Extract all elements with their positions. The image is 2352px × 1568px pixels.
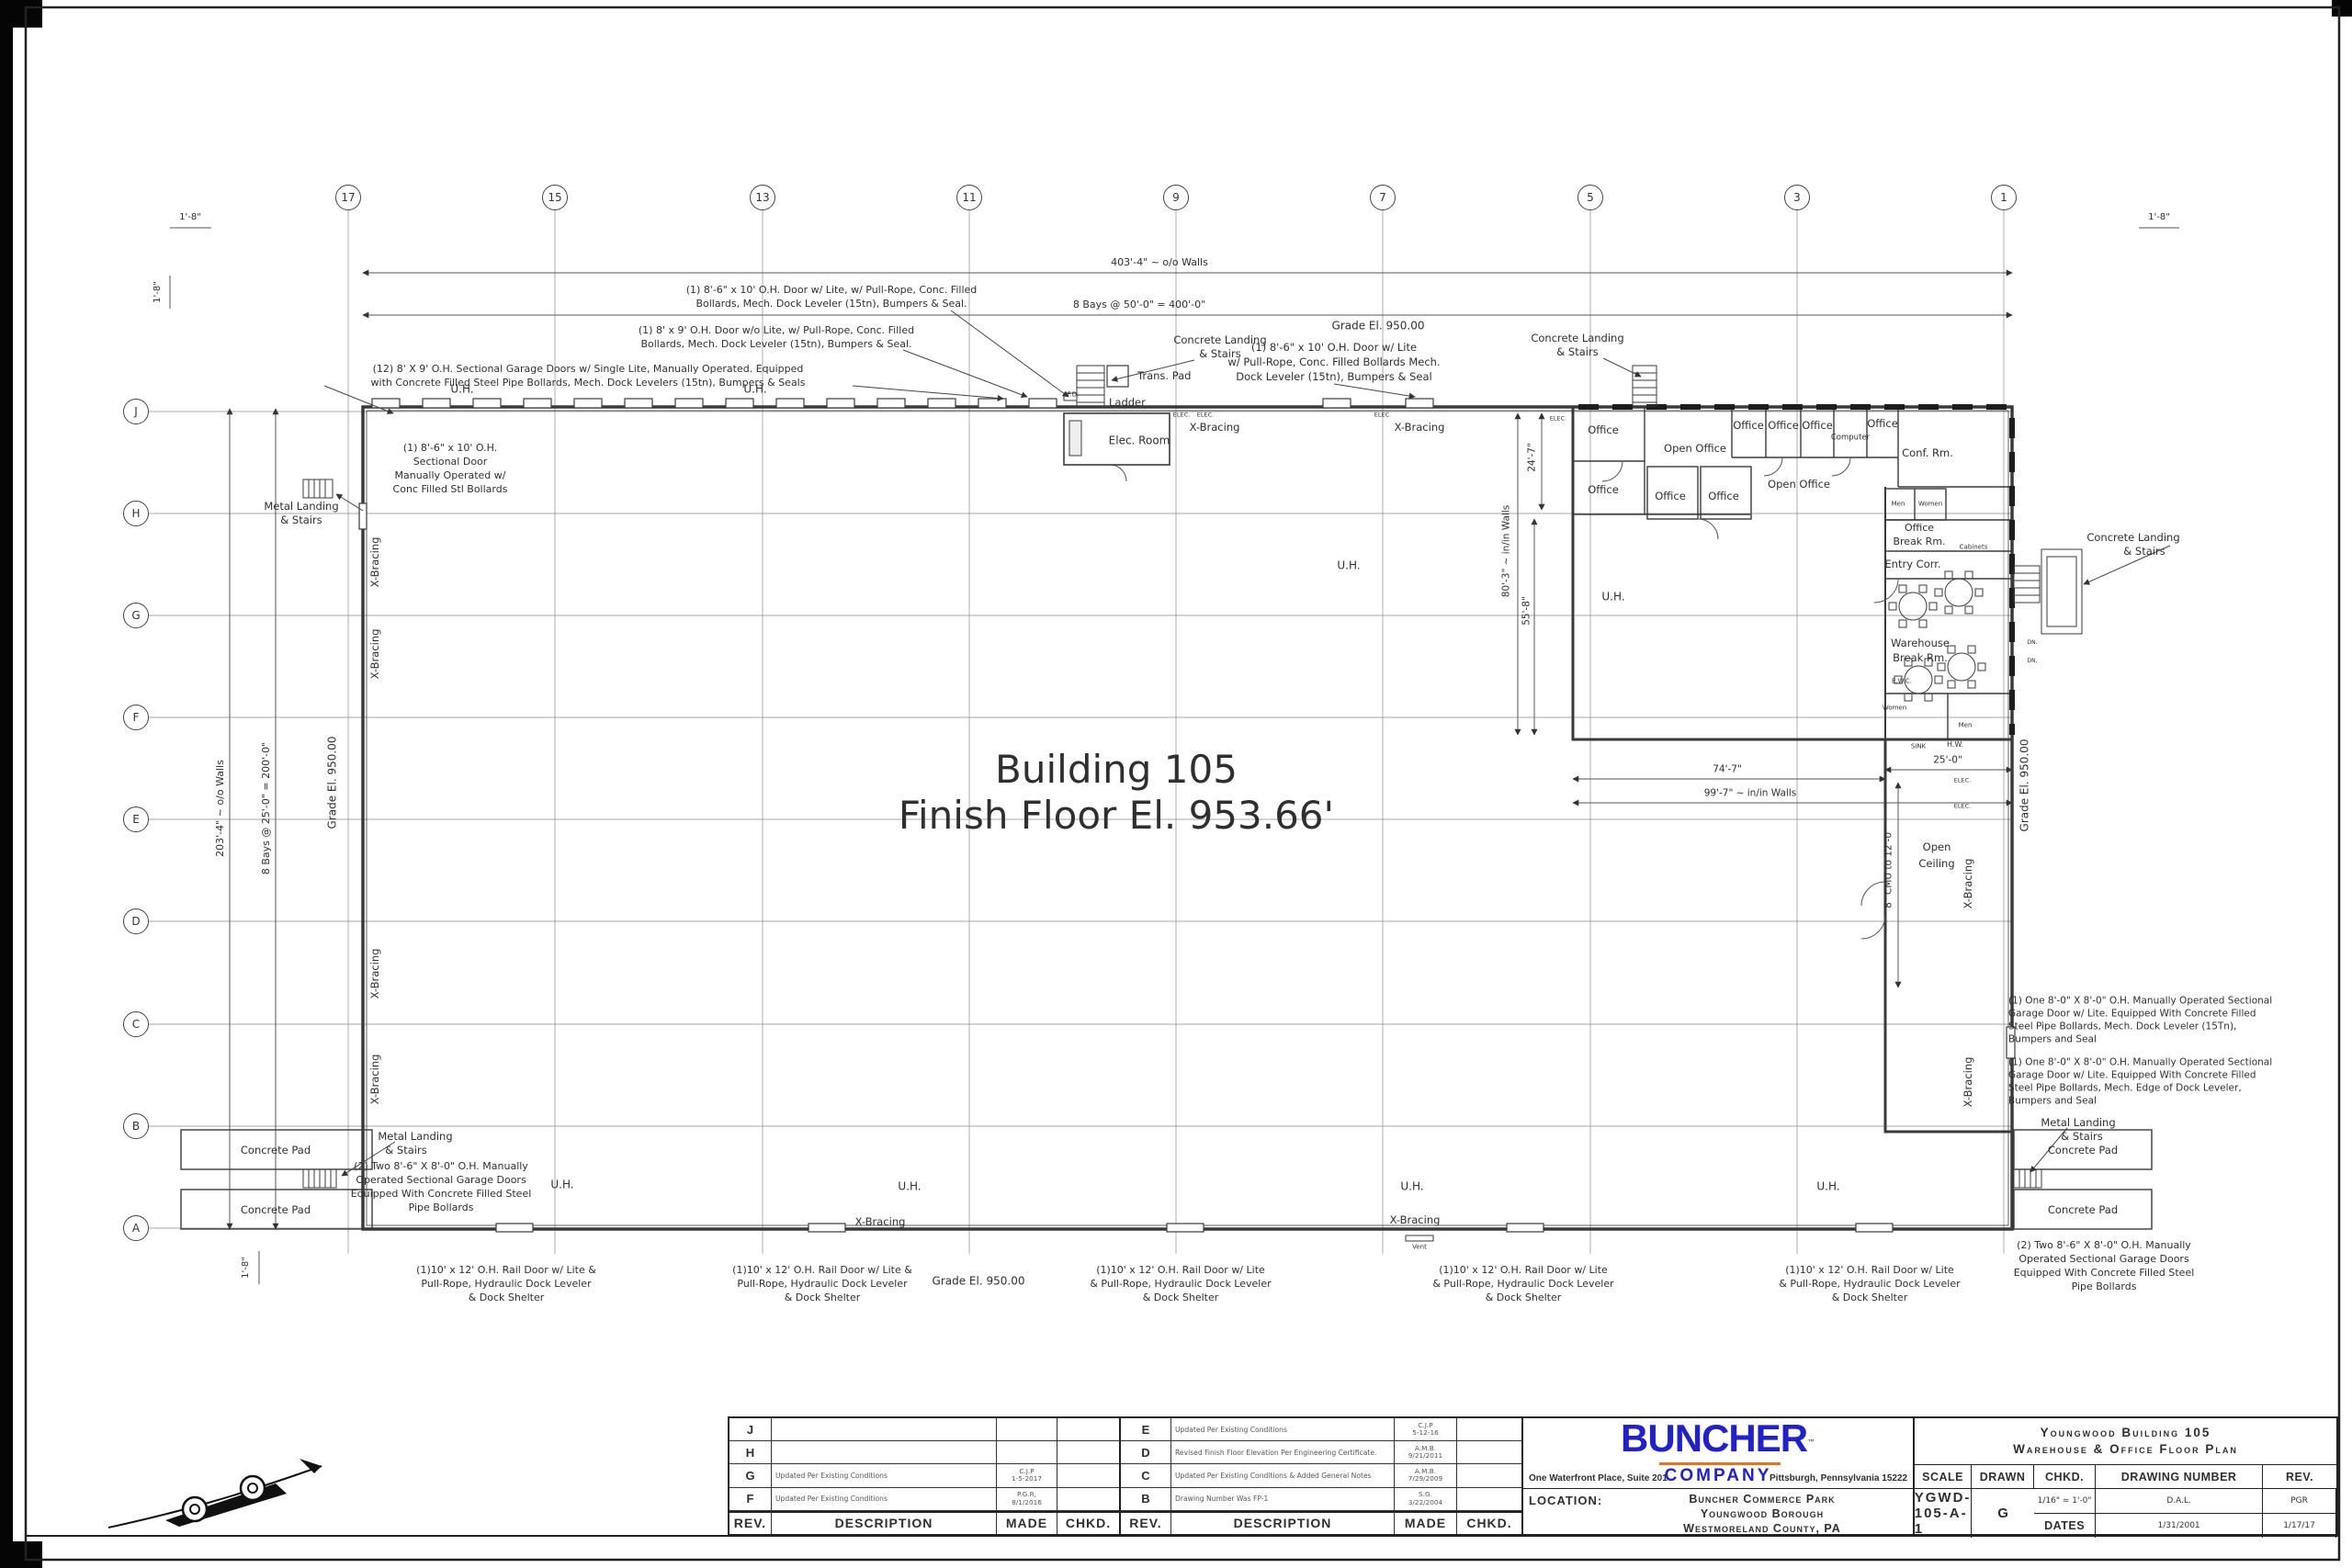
drawn-value: D.A.L. (2096, 1488, 2263, 1513)
ann-rail-door-5-line1: (1)10' x 12' O.H. Rail Door w/ Lite (1785, 1265, 1954, 1276)
ann-two-doors-left-line1: (2) Two 8'-6" X 8'-0" O.H. Manually (354, 1161, 528, 1172)
x-bracing-right-1: X-Bracing (1962, 859, 1973, 909)
concrete-landing-top-right-line2: & Stairs (1556, 346, 1598, 357)
grid-column-bubble-11: 11 (956, 185, 982, 210)
ann-rail-door-5-line3: & Dock Shelter (1832, 1292, 1908, 1303)
concrete-landing-top-right-line1: Concrete Landing (1531, 333, 1623, 344)
ann-left-door-line1: (1) 8'-6" x 10' O.H. (403, 443, 497, 454)
rev-letter-D: D (1121, 1441, 1171, 1464)
vent-label: Vent (1412, 1244, 1427, 1250)
rev-description-G: Updated Per Existing Conditions (772, 1464, 997, 1487)
rev-made-H (997, 1441, 1057, 1464)
ann-right-garage-1-line4: Bumpers and Seal (2008, 1034, 2097, 1044)
titleblock: Youngwood Building 105 Warehouse & Offic… (1915, 1418, 2336, 1534)
entry-landing-outer (2041, 549, 2082, 634)
grade-el-left: Grade El. 950.00 (327, 737, 339, 829)
room-entry-corr: Entry Corr. (1884, 558, 1940, 570)
sink-label: SINK (1911, 743, 1926, 750)
company-logo: BUNCHER (1621, 1416, 1807, 1460)
leader-lines (324, 310, 2170, 1176)
rev-letter-E: E (1121, 1418, 1171, 1441)
chkd-value: PGR (2263, 1488, 2336, 1513)
entry-landing-inner (2047, 557, 2076, 626)
building-title-line1: Building 105 (995, 750, 1238, 790)
grid-row-bubble-H: H (123, 501, 149, 526)
rev-made-E: C.J.P 5-12-16 (1395, 1418, 1457, 1441)
grade-el-bottom: Grade El. 950.00 (933, 1276, 1025, 1288)
ann-oh-door-mid-line3: Dock Leveler (15tn), Bumpers & Seal (1236, 371, 1431, 382)
stairs-top-right (1633, 366, 1657, 406)
grid-row-bubble-B: B (123, 1113, 149, 1139)
elec-label-6: ELEC. (1954, 804, 1971, 810)
dim-1-8-top-left: 1'-8" (179, 213, 201, 223)
uh-label-4: U.H. (1601, 592, 1624, 604)
ann-left-door-line4: Conc Filled Stl Bollards (393, 484, 508, 495)
company-divider (1523, 1488, 1913, 1489)
rev-header-description: DESCRIPTION (772, 1511, 997, 1534)
grid-row-bubble-A: A (123, 1215, 149, 1241)
ann-rail-door-1-line2: Pull-Rope, Hydraulic Dock Leveler (421, 1279, 591, 1290)
room-women-1: Women (1918, 501, 1942, 507)
ann-rail-door-2-line3: & Dock Shelter (785, 1292, 861, 1303)
drawing-title-line2: Warehouse & Office Floor Plan (1915, 1442, 2336, 1456)
stairs-right-lower (2014, 1169, 2041, 1188)
ewc-label: E.W.C. (1892, 678, 1912, 684)
room-office-7: Office (1802, 420, 1833, 431)
left-wall-sectional-door (359, 503, 367, 529)
ann-rail-door-5-line2: & Pull-Rope, Hydraulic Dock Leveler (1779, 1279, 1960, 1290)
elec-label-1: ELEC. (1173, 412, 1190, 419)
ann-right-garage-1-line2: Garage Door w/ Lite. Equipped With Concr… (2008, 1009, 2256, 1019)
grid-row-bubble-D: D (123, 908, 149, 934)
rev-header: REV. (2263, 1464, 2336, 1488)
scale-header: SCALE (1915, 1464, 1972, 1488)
dim-25-0: 25'-0" (1933, 755, 1962, 765)
room-computer: Computer (1831, 434, 1870, 443)
company-block: BUNCHER™ COMPANY One Waterfront Place, S… (1523, 1418, 1915, 1534)
company-logo-underline (1659, 1462, 1781, 1465)
drawing-number-header: DRAWING NUMBER (2096, 1464, 2263, 1488)
ann-sectional-doors-line1: (12) 8' X 9' O.H. Sectional Garage Doors… (373, 364, 804, 375)
cabinets-label: Cabinets (1960, 544, 1988, 550)
rev-description-J (772, 1418, 997, 1441)
location-line-2: Youngwood Borough (1624, 1507, 1900, 1520)
metal-landing-bl-line2: & Stairs (385, 1145, 426, 1156)
elec-room-label: Elec. Room (1109, 435, 1170, 447)
room-open-office-2: Open Office (1768, 479, 1830, 490)
rev-header-rev: REV. (1121, 1511, 1171, 1534)
concrete-pad-left-1-label: Concrete Pad (241, 1145, 311, 1156)
title-strip: JHGUpdated Per Existing ConditionsC.J.P … (728, 1416, 2338, 1536)
room-office-break-line2: Break Rm. (1893, 536, 1945, 547)
rev-header-made: MADE (1395, 1511, 1457, 1534)
concrete-landing-right-line2: & Stairs (2123, 546, 2165, 557)
grid-row-bubble-G: G (123, 603, 149, 628)
rev-description-B: Drawing Number Was FP-1 (1171, 1488, 1395, 1511)
rev-chkd-D (1457, 1441, 1521, 1464)
ann-oh-door-8x9-line2: Bollards, Mech. Dock Leveler (15tn), Bum… (640, 339, 911, 350)
rev-value: G (1972, 1488, 2034, 1538)
dim-1-8-top-right: 1'-8" (2148, 213, 2170, 223)
ann-oh-door-86x10-line1: (1) 8'-6" x 10' O.H. Door w/ Lite, w/ Pu… (686, 285, 978, 296)
grid-column-bubble-17: 17 (335, 185, 361, 210)
rev-chkd-J (1057, 1418, 1119, 1441)
room-office-6: Office (1768, 420, 1799, 431)
ann-two-doors-right-line3: Equipped With Concrete Filled Steel (2014, 1268, 2195, 1279)
room-office-1: Office (1588, 424, 1619, 435)
chkd-header: CHKD. (2034, 1464, 2096, 1488)
rev-letter-B: B (1121, 1488, 1171, 1511)
ladder-label: Ladder (1109, 397, 1146, 408)
metal-landing-left-line2: & Stairs (280, 514, 322, 525)
x-bracing-left-1: X-Bracing (369, 537, 380, 588)
grid-column-bubble-15: 15 (542, 185, 568, 210)
revision-table-left: JHGUpdated Per Existing ConditionsC.J.P … (729, 1418, 1121, 1534)
ann-two-doors-left-line2: Operated Sectional Garage Doors (356, 1175, 526, 1186)
vent-mark (1406, 1235, 1433, 1241)
hw-label: H.W. (1947, 741, 1963, 749)
room-office-4: Office (1708, 491, 1739, 502)
ann-oh-door-mid-line1: (1) 8'-6" x 10' O.H. Door w/ Lite (1251, 342, 1417, 353)
dim-403-4: 403'-4" ~ o/o Walls (1111, 257, 1208, 268)
ann-rail-door-2-line1: (1)10' x 12' O.H. Rail Door w/ Lite & (732, 1265, 912, 1276)
rev-made-G: C.J.P 1-5-2017 (997, 1464, 1057, 1487)
rev-chkd-B (1457, 1488, 1521, 1511)
metal-landing-left-line1: Metal Landing (264, 501, 338, 512)
ann-right-garage-2-line2: Garage Door w/ Lite. Equipped With Concr… (2008, 1070, 2256, 1080)
room-men-1: Men (1892, 501, 1905, 507)
room-conf-rm: Conf. Rm. (1902, 447, 1953, 458)
ann-two-doors-left-line4: Pipe Bollards (409, 1202, 474, 1213)
grid-column-bubble-5: 5 (1577, 185, 1603, 210)
rev-header-made: MADE (997, 1511, 1057, 1534)
room-office-break-line1: Office (1905, 523, 1934, 534)
ann-rail-door-3-line2: & Pull-Rope, Hydraulic Dock Leveler (1090, 1279, 1271, 1290)
ann-sectional-doors-line2: with Concrete Filled Steel Pipe Bollards… (371, 378, 806, 389)
x-bracing-left-3: X-Bracing (369, 949, 380, 999)
x-bracing-top-1: X-Bracing (1190, 422, 1240, 433)
dim-74-7: 74'-7" (1713, 764, 1742, 774)
scan-corner-top-left (13, 0, 42, 28)
ann-rail-door-1-line3: & Dock Shelter (469, 1292, 545, 1303)
room-office-5: Office (1733, 420, 1764, 431)
stairs-top-left (1077, 366, 1104, 406)
rev-description-F: Updated Per Existing Conditions (772, 1488, 997, 1511)
grid-column-bubble-7: 7 (1370, 185, 1396, 210)
x-bracing-left-4: X-Bracing (369, 1055, 380, 1105)
grid-row-bubble-E: E (123, 807, 149, 832)
room-office-3: Office (1655, 491, 1686, 502)
dim-8-bays-25: 8 Bays @ 25'-0" = 200'-0" (261, 742, 272, 874)
ann-left-door-line3: Manually Operated w/ (395, 470, 506, 481)
drawn-date: 1/31/2001 (2096, 1513, 2263, 1538)
elec-label-5: ELEC. (1954, 778, 1971, 784)
ann-rail-door-4-line1: (1)10' x 12' O.H. Rail Door w/ Lite (1439, 1265, 1608, 1276)
rev-header-chkd: CHKD. (1057, 1511, 1119, 1534)
company-address-right: Pittsburgh, Pennsylvania 15222 (1770, 1473, 1907, 1483)
rev-letter-G: G (729, 1464, 772, 1487)
ann-rail-door-3-line3: & Dock Shelter (1143, 1292, 1219, 1303)
x-bracing-bottom-2: X-Bracing (1390, 1214, 1441, 1225)
stairs-entry-right (2014, 566, 2040, 603)
grade-el-top: Grade El. 950.00 (1332, 321, 1425, 333)
dates-label: DATES (2034, 1513, 2096, 1538)
rev-chkd-F (1057, 1488, 1119, 1511)
drawing-sheet: 1715131197531JHGFEDCBA (1) 8'-6" x 10' O… (0, 0, 2352, 1568)
room-office-8: Office (1867, 418, 1898, 429)
rev-letter-C: C (1121, 1464, 1171, 1487)
drawn-header: DRAWN (1972, 1464, 2034, 1488)
uh-label-6: U.H. (898, 1181, 921, 1193)
ann-rail-door-3-line1: (1)10' x 12' O.H. Rail Door w/ Lite (1096, 1265, 1265, 1276)
building-title-line2: Finish Floor El. 953.66' (899, 795, 1334, 836)
rev-chkd-H (1057, 1441, 1119, 1464)
rev-chkd-G (1057, 1464, 1119, 1487)
concrete-pad-right-2-label: Concrete Pad (2048, 1204, 2118, 1215)
ann-oh-door-86x10-line2: Bollards, Mech. Dock Leveler (15tn), Bum… (695, 299, 967, 310)
ann-rail-door-4-line2: & Pull-Rope, Hydraulic Dock Leveler (1432, 1279, 1613, 1290)
uh-label-5: U.H. (550, 1179, 573, 1191)
stairs-left-upper (303, 479, 333, 498)
dim-8-bays-50: 8 Bays @ 50'-0" = 400'-0" (1073, 299, 1205, 310)
trans-pad-label: Trans. Pad (1137, 370, 1191, 381)
dim-80-3: 80'-3" ~ in/in Walls (1501, 505, 1511, 598)
grid-column-bubble-13: 13 (750, 185, 775, 210)
rev-made-F: P.G.R, 8/1/2016 (997, 1488, 1057, 1511)
x-bracing-bottom-1: X-Bracing (855, 1216, 906, 1227)
x-bracing-top-2: X-Bracing (1395, 422, 1445, 433)
metal-landing-bl-line1: Metal Landing (378, 1131, 452, 1142)
rev-description-C: Updated Per Existing Conditions & Added … (1171, 1464, 1395, 1487)
scan-corner-bottom-left (13, 1541, 42, 1568)
elec-label-3: ELEC. (1374, 412, 1391, 419)
elec-label-2: ELEC. (1197, 412, 1214, 419)
grade-el-right: Grade El. 950.00 (2019, 739, 2031, 832)
scale-value: 1/16" = 1'-0" (2034, 1488, 2096, 1513)
rev-description-E: Updated Per Existing Conditions (1171, 1418, 1395, 1441)
rev-chkd-E (1457, 1418, 1521, 1441)
stairs-left-lower (303, 1169, 336, 1188)
grid-column-bubble-9: 9 (1163, 185, 1189, 210)
rev-header-description: DESCRIPTION (1171, 1511, 1395, 1534)
north-arrow-ornament (108, 1459, 322, 1528)
company-address-left: One Waterfront Place, Suite 201 (1529, 1473, 1668, 1483)
concrete-pad-left-2-label: Concrete Pad (241, 1204, 311, 1215)
rev-letter-F: F (729, 1488, 772, 1511)
uh-label-7: U.H. (1400, 1181, 1423, 1193)
uh-label-3: U.H. (1337, 560, 1360, 572)
dim-55-8: 55'-8" (1521, 596, 1532, 626)
ann-left-door-line2: Sectional Door (413, 457, 488, 468)
ann-two-doors-right-line4: Pipe Bollards (2072, 1281, 2137, 1292)
rev-header-rev: REV. (729, 1511, 772, 1534)
ann-right-garage-1-line1: (1) One 8'-0" X 8'-0" O.H. Manually Oper… (2008, 996, 2272, 1006)
ann-rail-door-2-line2: Pull-Rope, Hydraulic Dock Leveler (737, 1279, 907, 1290)
dim-1-8-bottom-left: 1'-8" (242, 1257, 252, 1279)
x-bracing-left-2: X-Bracing (369, 629, 380, 680)
room-men-2: Men (1959, 722, 1973, 728)
grid-column-bubble-3: 3 (1784, 185, 1810, 210)
dim-1-8-left-upper: 1'-8" (153, 281, 164, 303)
ann-oh-door-8x9-line1: (1) 8' x 9' O.H. Door w/o Lite, w/ Pull-… (639, 325, 914, 336)
grid-column-bubble-1: 1 (1991, 185, 2017, 210)
rev-description-H (772, 1441, 997, 1464)
metal-landing-right-line1: Metal Landing (2041, 1117, 2115, 1128)
dim-24-7: 24'-7" (1527, 443, 1537, 472)
grid-row-bubble-C: C (123, 1011, 149, 1037)
ann-oh-door-mid-line2: w/ Pull-Rope, Conc. Filled Bollards Mech… (1227, 356, 1440, 367)
company-logo-tm: ™ (1807, 1439, 1815, 1449)
location-line-1: Buncher Commerce Park (1624, 1493, 1900, 1506)
metal-landing-right-line2: & Stairs (2061, 1131, 2102, 1142)
scan-edge-bar (0, 0, 13, 1568)
dn-label-2: DN. (2027, 659, 2037, 664)
fd-label: F.D. (1068, 391, 1080, 398)
dim-99-7: 99'-7" ~ in/in Walls (1704, 788, 1797, 798)
ann-right-garage-2-line4: Bumpers and Seal (2008, 1096, 2097, 1106)
concrete-pad-right-1-label: Concrete Pad (2048, 1145, 2118, 1156)
revision-table-right: EUpdated Per Existing ConditionsC.J.P 5-… (1121, 1418, 1523, 1534)
uh-label-2: U.H. (743, 384, 766, 396)
rev-chkd-C (1457, 1464, 1521, 1487)
room-open-ceiling-line2: Ceiling (1918, 858, 1954, 869)
room-open-office-1: Open Office (1664, 443, 1726, 454)
rev-letter-H: H (729, 1441, 772, 1464)
ann-right-garage-2-line1: (1) One 8'-0" X 8'-0" O.H. Manually Oper… (2008, 1057, 2272, 1067)
location-label: LOCATION: (1529, 1494, 1602, 1507)
rev-made-D: A.M.B. 9/21/2011 (1395, 1441, 1457, 1464)
rev-letter-J: J (729, 1418, 772, 1441)
trans-pad (1107, 366, 1128, 387)
drawing-number-value: YGWD-105-A-1 (1915, 1488, 1972, 1538)
grid-row-bubble-J: J (123, 399, 149, 424)
ann-rail-door-1-line1: (1)10' x 12' O.H. Rail Door w/ Lite & (416, 1265, 596, 1276)
ann-right-garage-1-line3: Steel Pipe Bollards, Mech. Dock Leveler … (2008, 1021, 2236, 1032)
ann-rail-door-4-line3: & Dock Shelter (1486, 1292, 1562, 1303)
rev-made-C: A.M.B. 7/29/2009 (1395, 1464, 1457, 1487)
ann-two-doors-left-line3: Equipped With Concrete Filled Steel (351, 1189, 532, 1200)
room-office-2: Office (1588, 484, 1619, 495)
rev-made-J (997, 1418, 1057, 1441)
ann-two-doors-right-line2: Operated Sectional Garage Doors (2018, 1254, 2188, 1265)
room-warehouse-break-line1: Warehouse (1891, 637, 1950, 649)
grid-row-bubble-F: F (123, 705, 149, 730)
ann-two-doors-right-line1: (2) Two 8'-6" X 8'-0" O.H. Manually (2017, 1240, 2191, 1251)
drawing-title-line1: Youngwood Building 105 (1915, 1426, 2336, 1439)
ann-right-garage-2-line3: Steel Pipe Bollards, Mech. Edge of Dock … (2008, 1083, 2242, 1093)
x-bracing-right-2: X-Bracing (1962, 1057, 1973, 1108)
room-warehouse-break-line2: Break Rm. (1893, 652, 1948, 663)
rev-header-chkd: CHKD. (1457, 1511, 1521, 1534)
room-women-2: Women (1883, 705, 1906, 711)
chkd-date: 1/17/17 (2263, 1513, 2336, 1538)
dn-label-1: DN. (2027, 640, 2037, 646)
rev-description-D: Revised Finish Floor Elevation Per Engin… (1171, 1441, 1395, 1464)
dim-203-4: 203'-4" ~ o/o Walls (215, 760, 226, 857)
company-word: COMPANY (1665, 1466, 1772, 1485)
concrete-landing-right-line1: Concrete Landing (2086, 532, 2179, 543)
uh-label-8: U.H. (1816, 1181, 1839, 1193)
dim-8-cmu: 8" CMU to 12'-0" (1883, 828, 1894, 908)
room-open-ceiling-line1: Open (1923, 841, 1951, 852)
location-line-3: Westmoreland County, PA (1624, 1522, 1900, 1535)
uh-label-1: U.H. (450, 384, 473, 396)
rev-made-B: S.G. 3/22/2004 (1395, 1488, 1457, 1511)
elec-label-4: ELEC. (1550, 416, 1566, 423)
